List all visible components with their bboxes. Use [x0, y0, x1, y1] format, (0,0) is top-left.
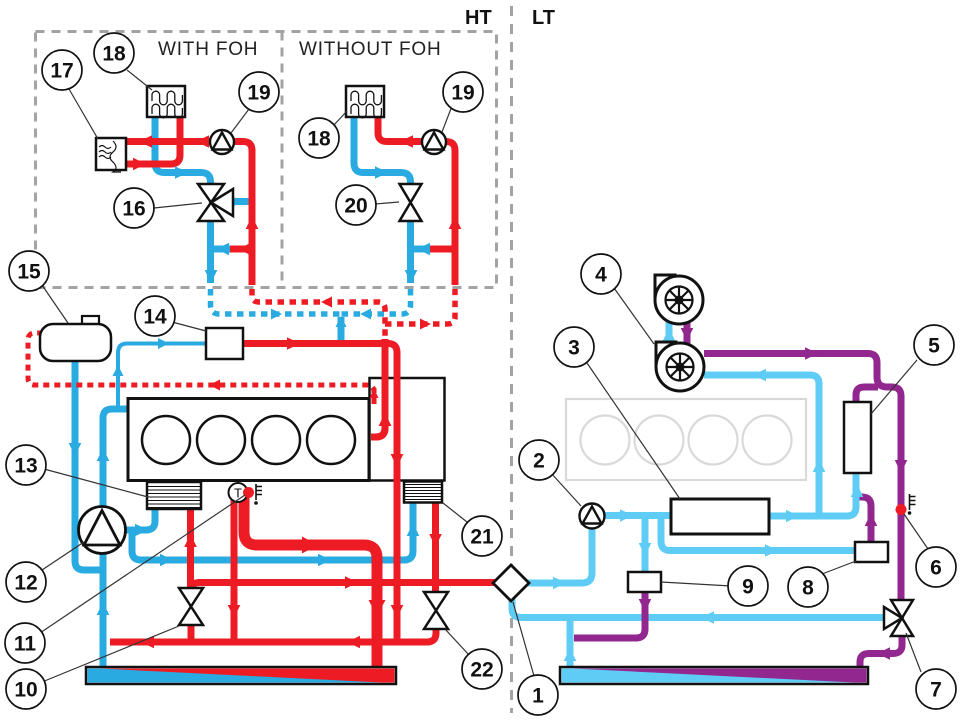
svg-text:3: 3	[568, 337, 580, 360]
svg-text:2: 2	[533, 450, 545, 473]
svg-text:19: 19	[451, 82, 474, 105]
svg-text:4: 4	[595, 264, 607, 287]
svg-text:9: 9	[742, 576, 754, 599]
svg-text:15: 15	[17, 261, 41, 284]
svg-text:1: 1	[532, 685, 544, 708]
svg-text:WITHOUT FOH: WITHOUT FOH	[299, 39, 442, 60]
svg-text:17: 17	[50, 60, 73, 83]
svg-text:7: 7	[930, 679, 942, 702]
svg-text:21: 21	[470, 526, 494, 549]
svg-text:LT: LT	[532, 7, 555, 29]
svg-text:WITH FOH: WITH FOH	[158, 39, 258, 60]
svg-text:13: 13	[14, 455, 37, 478]
svg-text:8: 8	[802, 577, 814, 600]
svg-text:14: 14	[143, 306, 167, 329]
svg-text:19: 19	[247, 82, 270, 105]
svg-text:12: 12	[14, 572, 37, 595]
svg-text:16: 16	[122, 198, 145, 221]
svg-text:18: 18	[307, 128, 331, 151]
svg-text:6: 6	[930, 557, 942, 580]
svg-text:10: 10	[14, 679, 37, 702]
svg-text:18: 18	[102, 43, 126, 66]
svg-text:5: 5	[928, 335, 940, 358]
svg-text:22: 22	[470, 659, 493, 682]
svg-text:20: 20	[344, 195, 367, 218]
svg-text:HT: HT	[465, 7, 492, 29]
svg-text:11: 11	[14, 633, 37, 656]
